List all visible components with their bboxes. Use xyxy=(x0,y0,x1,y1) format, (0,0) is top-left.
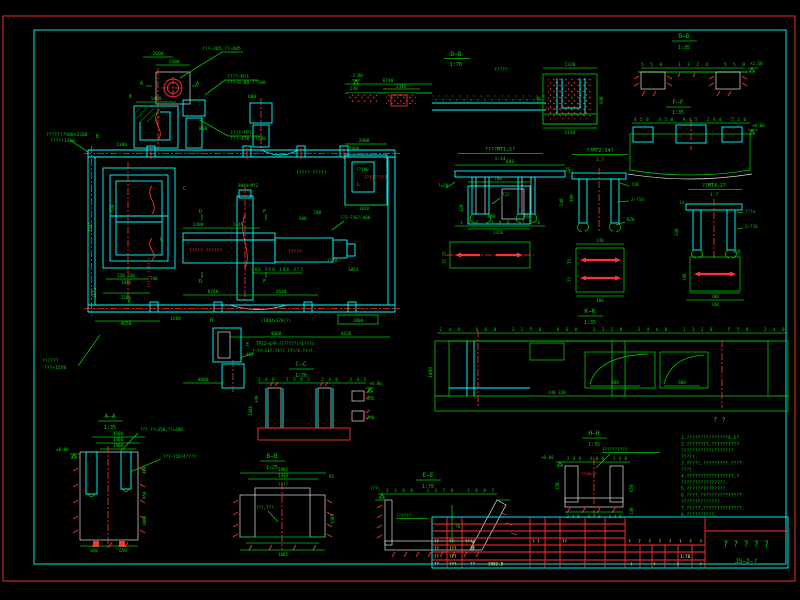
section-mark-a: A xyxy=(140,81,143,87)
section-title: E—E xyxy=(422,472,433,479)
titleblock-date: 2002.8 xyxy=(488,562,504,567)
dim: 1406 xyxy=(248,405,253,416)
drawing-title: ? ? ? ? ? xyxy=(723,540,769,550)
section-scale: 1:70 xyxy=(450,62,462,68)
red-vertical-label: ????? ?????? xyxy=(147,257,152,288)
leader-label: ???+1550 xyxy=(44,365,66,371)
titleblock-cell: ?? xyxy=(470,546,476,551)
section-scale: 1:35 xyxy=(672,110,684,116)
dim: 1320 xyxy=(564,62,575,68)
red-label: ???????? xyxy=(545,106,563,111)
dim: 25 xyxy=(565,167,571,172)
dim: R60 xyxy=(524,214,532,219)
leader-label: ???????500×2200 xyxy=(46,132,88,138)
dim: 1444 xyxy=(278,473,289,478)
titleblock-header: ? ? ? ? ? ? ? ? xyxy=(628,539,702,544)
dim: 240 xyxy=(350,86,358,91)
dim: 75 xyxy=(567,258,572,264)
dim: R20 xyxy=(627,217,635,222)
dim-chain: 450 450 945 240 520 xyxy=(634,117,746,122)
leader-label: ???—?16?4???? xyxy=(163,454,196,459)
dim: ?20 xyxy=(631,182,639,187)
dim: 1500 xyxy=(168,59,179,65)
section-mark-f: F xyxy=(263,209,266,215)
section-view-aa: A—A 1:35 4500 1400 1900 450 950 1060 650… xyxy=(56,413,196,553)
dim: 1885 xyxy=(278,552,289,557)
dim: 1400 xyxy=(113,437,124,442)
leader-label: ????—M?1 xyxy=(227,74,249,80)
level-mark: +0.60 xyxy=(541,455,554,460)
level-mark: ±0.00 xyxy=(56,447,69,452)
dim: 650 xyxy=(629,484,634,492)
dim-chain: 240 600 3250 860 1320 2448 1320 550 240 xyxy=(440,327,785,332)
titleblock-cell: ?? xyxy=(434,539,440,544)
dim: 200 xyxy=(711,294,719,299)
dim: 450 xyxy=(142,466,147,474)
dim: ???a xyxy=(745,209,756,214)
section-mark-e: E xyxy=(246,342,249,348)
dim: 75 xyxy=(567,276,572,282)
dim: 680 xyxy=(678,380,686,385)
note-line: ???). xyxy=(681,467,695,473)
label: ??100 xyxy=(356,167,369,172)
dim: 1400 xyxy=(330,513,335,524)
dim: 85 xyxy=(329,474,335,479)
dim: 1020 xyxy=(359,206,370,211)
section-title: K—K xyxy=(584,308,595,315)
cad-drawing-viewport[interactable]: 2600 1500 1400 A A K ???—305,??—405 800 … xyxy=(0,0,800,600)
dim: 4581 xyxy=(88,221,93,232)
note-line: 6.????,??????????????? xyxy=(681,493,742,499)
dim-chain: 240 1505 240 345 xyxy=(258,377,366,382)
dim: 220 220 xyxy=(117,273,135,278)
section-mark-l: L xyxy=(357,182,360,188)
note-line: 3.????(,?????????,???? xyxy=(681,461,742,467)
detail-title: ??MT2,14? xyxy=(586,148,613,154)
titleblock-cell: ??? xyxy=(449,562,457,567)
section-mark-c: C xyxy=(183,186,186,192)
section-scale: 1:25 xyxy=(266,465,278,471)
section-mark-d: D xyxy=(199,209,202,215)
note-line: ????????????????. xyxy=(681,480,728,486)
note-line: 7.??/??,??????????????. xyxy=(681,505,745,511)
leader-label: ???,??? xyxy=(256,505,274,510)
section-mark-k: K xyxy=(129,94,132,100)
dim-chain: 550 1324 550 xyxy=(641,62,745,68)
dim: 1400 xyxy=(349,146,360,151)
titleblock-cell: ?? xyxy=(434,562,440,567)
section-view-db: D—B 1:70 8748 2446 240 -2.00 ????? ?????… xyxy=(345,51,604,136)
section-mark-d: D xyxy=(199,279,202,285)
level-mark: +0.00 xyxy=(369,381,382,386)
dim: 8748 xyxy=(207,289,218,295)
dim: 1400 xyxy=(150,96,161,102)
level-mark: +0.60 xyxy=(752,123,765,128)
leader-label: ???—450 ??500 xyxy=(230,136,266,142)
section-title: H—H xyxy=(588,430,599,437)
dim: 1200 xyxy=(170,316,181,322)
red-label: ????? ?????? xyxy=(189,248,222,254)
section-mark-h: H xyxy=(210,318,213,324)
dim: 240 xyxy=(367,415,375,420)
section-scale: 1:35 xyxy=(588,442,600,448)
titleblock-cell: ?? xyxy=(434,546,440,551)
red-label: ????????? xyxy=(364,175,387,180)
dim: 4436 xyxy=(340,331,351,337)
note-line: ???????????(??????? xyxy=(681,448,734,454)
dim: 340 xyxy=(254,395,259,403)
title-block: ?? ?? ???? ? ? ?? ? ? ? ? ? ? ? ? ?? ???… xyxy=(432,517,788,568)
section-mark-k: K xyxy=(128,299,131,305)
dim: 4000 xyxy=(197,377,208,383)
dim: 940 xyxy=(599,96,604,104)
red-label: ????? xyxy=(288,249,302,255)
dim: 2—?16 xyxy=(631,197,644,202)
leader-label: ?????????? xyxy=(602,447,628,452)
section-view-hh: H—H 1:35 ?????????? +0.60 240 600 240 ??… xyxy=(541,430,660,519)
titleblock-scale: 1:70 xyxy=(680,554,691,559)
titleblock-cell: ? ? xyxy=(532,539,540,544)
titleblock-cell: ?? xyxy=(449,539,455,544)
dim: 4060 xyxy=(270,331,281,337)
label: ????? xyxy=(494,67,508,73)
dim: 4650 xyxy=(120,321,131,327)
dim: 240 xyxy=(674,228,679,236)
dim: (1884×370(?) xyxy=(261,318,291,323)
note-line: ??????????????. xyxy=(681,499,723,505)
dim: 4500 xyxy=(113,431,124,436)
detail-view-mt4: ??MT4,2? 1:7 ???a 2—?16 R20 14 240 190 2… xyxy=(674,183,758,307)
detail-scale: 1:7 xyxy=(596,157,605,163)
leader-label: ???—305,??—405 xyxy=(202,46,241,52)
leader-label: ????—M?1 xyxy=(230,130,252,136)
dim: 2000 xyxy=(358,138,369,144)
section-view-ff: F—F 1:35 450 450 945 240 520 +0.60 xyxy=(628,99,765,179)
section-title: A—A xyxy=(104,413,115,420)
leader-label: ?????? xyxy=(42,358,59,364)
dim: 700 xyxy=(150,276,158,281)
dim: 1900 xyxy=(113,443,124,448)
leader-label: ??? ??=350,??=400 xyxy=(140,427,183,432)
note-line: 1.???????????????4.5?. xyxy=(681,435,742,441)
dim: 700 xyxy=(313,210,322,216)
leader-label: ???+0.00 ??500 xyxy=(227,80,266,86)
dim: 14 xyxy=(679,200,685,205)
dim: 950 xyxy=(142,491,147,499)
dim: 1046 xyxy=(121,280,132,285)
section-mark-g: G xyxy=(160,237,163,243)
notes-block: ? ? 1.???????????????4.5?. 2.????????,??… xyxy=(681,416,745,518)
dim: 348 xyxy=(711,302,719,307)
section-title: D—B xyxy=(450,51,461,58)
dim: 2—?16 xyxy=(745,224,758,229)
cad-drawing: 2600 1500 1400 A A K ???—305,??—405 800 … xyxy=(0,0,800,600)
note-line: 2.????????,?????????? xyxy=(681,441,739,447)
dim: 240 320 xyxy=(548,390,566,395)
dim: 2446 xyxy=(396,84,407,89)
level-mark: (??) xyxy=(370,486,380,491)
drawing-number: JS—2—? xyxy=(735,558,758,565)
section-mark-b: B xyxy=(96,134,99,140)
dim: 400 xyxy=(299,216,307,221)
note-line: 4.?????????????????,? xyxy=(681,473,739,479)
leader-label: ??2—?16?—400 xyxy=(340,215,371,220)
level-mark: +2.50 xyxy=(750,61,763,66)
dim: 8748 xyxy=(382,78,393,84)
dim-chain: 480 958 108 375 xyxy=(251,267,303,272)
dim: 1400 xyxy=(192,222,203,228)
dim-chain: 240 600 240 xyxy=(567,456,627,461)
dim: 1885 xyxy=(278,467,289,472)
dim: 1060 xyxy=(142,515,147,526)
label: ?????? xyxy=(396,513,412,518)
leader-label: TP12—4/R-???????(?1???) xyxy=(256,341,314,346)
dim: 2146 xyxy=(564,130,575,136)
section-mark-f: F xyxy=(263,279,266,285)
leader-label: ?—??—11?,?4??,???/4,??~? xyxy=(252,348,313,353)
dim: 650 xyxy=(119,548,127,553)
dim: 480 xyxy=(611,380,619,385)
section-view-bb: B—B 1:25 1885 1444 ???? ???,??? 85 1400 … xyxy=(233,453,335,557)
dim-chain: 240 640 240 xyxy=(567,514,622,519)
titleblock-cell: ???? xyxy=(465,539,476,544)
detail-scale: 1:7 xyxy=(710,192,719,198)
label: ????? ????? xyxy=(296,170,327,176)
dim: 1320 xyxy=(327,258,338,263)
detail-title: ????MT1,5? xyxy=(485,147,515,153)
section-title: C—C xyxy=(295,361,306,368)
detail-title: ??MT4,2? xyxy=(702,183,726,189)
dim: 1320 xyxy=(493,230,504,235)
dim: 1300 xyxy=(116,142,127,148)
note-line: ????). xyxy=(681,454,698,460)
section-scale: 1:35 xyxy=(678,45,690,51)
dim: 400 xyxy=(569,194,574,202)
dim: 2640 xyxy=(275,289,286,295)
section-title: F—F xyxy=(672,99,683,106)
dim: 2600 xyxy=(152,51,163,57)
section-view-kk: K—K 1:35 240 600 3250 860 1320 2448 1320… xyxy=(428,308,788,411)
section-view-dd: D—D 1:35 550 1324 550 +2.50 xyxy=(634,33,763,96)
dim: 650 xyxy=(90,548,98,553)
titleblock-cell: ?? xyxy=(434,554,440,559)
dim: 130 xyxy=(629,507,634,515)
dim: 680 xyxy=(248,94,257,100)
titleblock-cell: ?? xyxy=(562,539,568,544)
dim: ?22 xyxy=(502,192,510,197)
leader-label: 9044—M?2 xyxy=(238,183,259,188)
dim: 1572 xyxy=(92,287,97,298)
dim: 150 xyxy=(555,482,560,490)
note-line: 5.??????????????. xyxy=(681,486,728,492)
titleblock-cell: ??? xyxy=(449,554,457,559)
dim: ?0 xyxy=(455,524,461,529)
dim: 530 xyxy=(110,204,115,212)
dim: R20 xyxy=(733,249,741,254)
notes-title: ? ? xyxy=(713,416,726,424)
dim: 180 xyxy=(596,298,604,303)
red-label: ??20×4? xyxy=(581,471,597,476)
dim: 190 xyxy=(682,273,687,281)
section-view-ee: E—E 1:70 1300 1378 1085 ?0 ?????? (??) xyxy=(370,472,517,557)
label: ???? xyxy=(278,482,289,487)
dim: 680 xyxy=(506,159,515,165)
section-title: D—D xyxy=(678,33,689,40)
dim: 240 xyxy=(559,198,564,206)
dim: 240 xyxy=(536,96,541,104)
dim: 140 xyxy=(596,238,604,243)
titleblock-cell: ?? xyxy=(470,562,476,567)
titleblock-cell: ??? xyxy=(449,546,457,551)
dim: 1400 xyxy=(428,367,434,378)
section-scale: 1:35 xyxy=(584,320,596,326)
section-view-cc: C—C 1:70 240 1505 240 345 345 240 +0.00 … xyxy=(248,361,382,440)
dim-chain: 1300 1378 1085 xyxy=(386,488,494,493)
dim: 75 75 xyxy=(442,251,447,264)
dim: 1800 xyxy=(353,318,364,323)
dim: 345 xyxy=(367,396,375,401)
dim: 1054 xyxy=(348,267,359,272)
dim: 800 xyxy=(199,126,208,132)
detail-scale: 1:14 xyxy=(494,156,505,162)
level-mark: -2.00 xyxy=(350,73,363,78)
section-title: B—B xyxy=(266,453,277,460)
dim: R50 xyxy=(488,214,496,219)
dim: 1449 xyxy=(232,222,243,228)
dim: 320 xyxy=(459,204,464,212)
